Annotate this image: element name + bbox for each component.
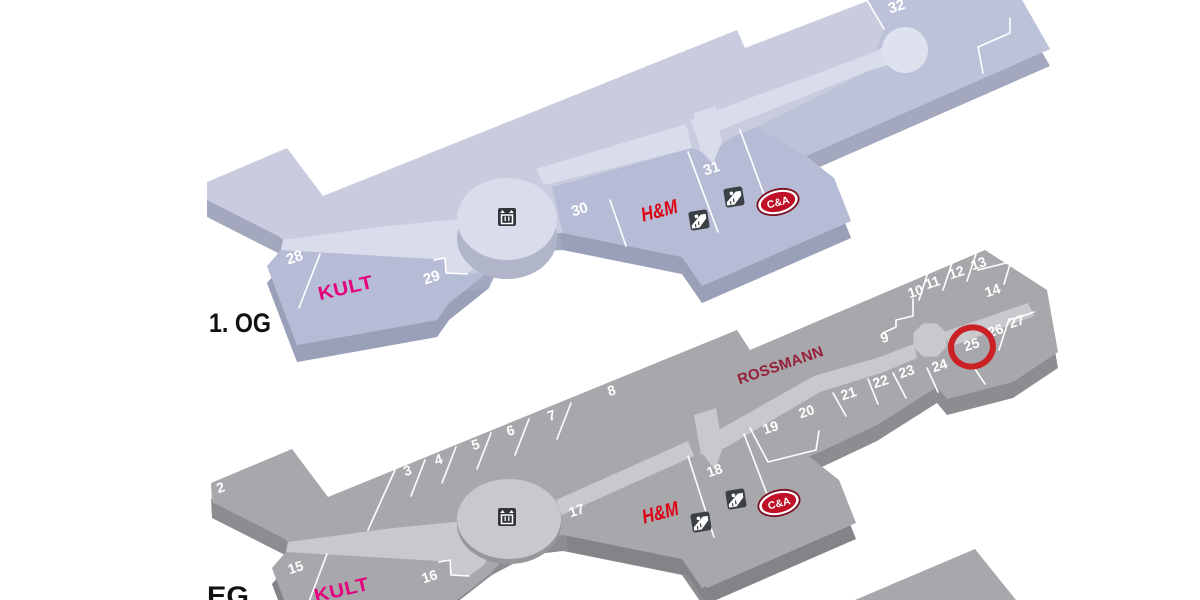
svg-text:1. OG: 1. OG [209, 308, 271, 338]
svg-text:EG: EG [207, 581, 249, 600]
